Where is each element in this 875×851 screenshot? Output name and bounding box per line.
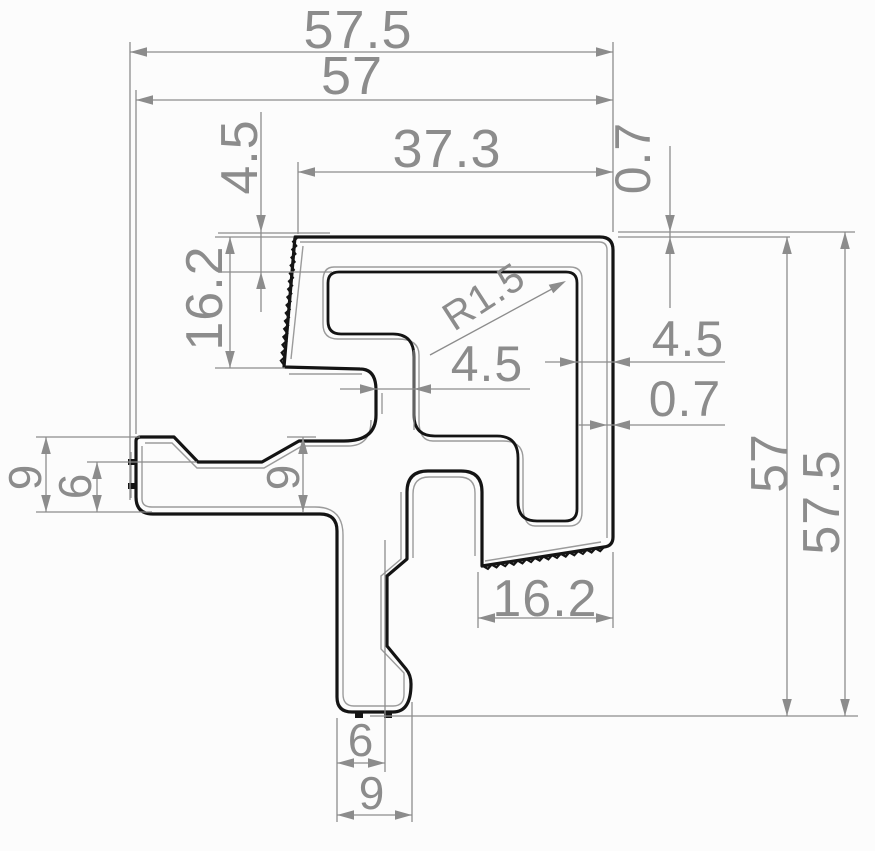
dimension-arrowhead	[130, 47, 147, 57]
dimension-4-5-right: 4.5	[545, 311, 725, 367]
dimension-label: 9	[359, 767, 386, 819]
dimension-label: 37.3	[392, 119, 501, 179]
dimension-label: 4.5	[652, 311, 725, 367]
dimension-label: 4.5	[211, 119, 269, 194]
dimension-arrowhead	[782, 237, 792, 254]
dimension-arrowhead	[782, 699, 792, 716]
dimension-arrowhead	[665, 237, 675, 254]
dimension-arrowhead	[337, 810, 354, 820]
dimension-label: 4.5	[451, 336, 524, 392]
dimension-arrowhead	[549, 277, 569, 293]
dimension-4-5-mid: 4.5	[340, 336, 530, 430]
dimension-16-2-left: 16.2	[176, 237, 293, 368]
dimension-label: 9	[257, 464, 309, 491]
dimension-37-3-top: 37.3	[298, 119, 613, 234]
dimension-arrowhead	[256, 272, 266, 289]
dimension-label: 16.2	[176, 245, 234, 350]
dimension-label: 0.7	[605, 122, 661, 195]
dimension-arrowhead	[298, 167, 315, 177]
dimension-label: 9	[0, 464, 51, 491]
dimension-57-right: 57	[741, 237, 799, 716]
dimension-arrowhead	[840, 232, 850, 249]
dimension-arrowhead	[596, 95, 613, 105]
dimension-arrowhead	[298, 495, 308, 512]
dimension-label: 57	[741, 433, 799, 493]
profile-technical-drawing: 57.55737.34.516.2R1.54.54.50.70.75757.51…	[0, 0, 875, 846]
dimension-0-7-right: 0.7	[578, 371, 725, 430]
dimension-arrowhead	[613, 420, 630, 430]
dimension-arrowhead	[665, 215, 675, 232]
dimension-arrowhead	[136, 95, 153, 105]
dimension-arrowhead	[596, 47, 613, 57]
dimension-arrowhead	[395, 810, 412, 820]
dimension-arrowhead	[41, 437, 51, 454]
dimension-arrowhead	[613, 357, 630, 367]
dimension-arrowhead	[560, 357, 577, 367]
dimension-arrowhead	[256, 215, 266, 232]
dimension-arrowhead	[840, 699, 850, 716]
dimension-label: 6	[49, 473, 101, 500]
dimension-label: 57	[321, 46, 383, 106]
dimension-label: 57.5	[793, 449, 851, 554]
dimension-label: 0.7	[649, 371, 722, 427]
dimension-arrowhead	[414, 384, 431, 394]
dimension-label: 6	[348, 714, 375, 766]
drawing-canvas: 57.55737.34.516.2R1.54.54.50.70.75757.51…	[0, 0, 875, 846]
dimension-arrowhead	[225, 351, 235, 368]
wall-inner-face-line	[413, 477, 475, 558]
dimension-arrowhead	[590, 420, 607, 430]
dimension-0-7-top: 0.7	[605, 122, 855, 308]
dimension-arrowhead	[596, 613, 613, 623]
dimension-label: 16.2	[492, 570, 597, 628]
dimension-6-left: 6	[49, 462, 197, 512]
